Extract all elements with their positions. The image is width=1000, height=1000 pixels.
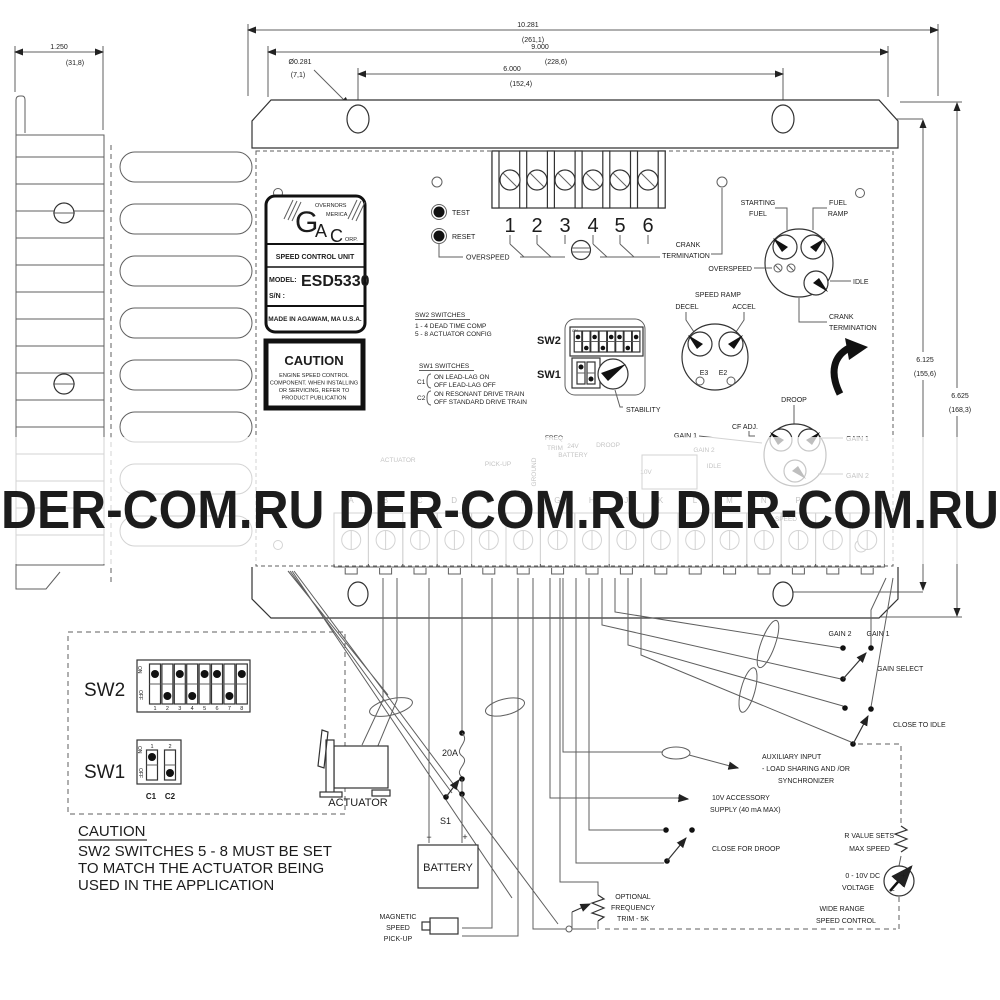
nameplate-label: G OVERNORS A MERICA C ORP. SPEED CONTROL…: [266, 196, 370, 332]
svg-text:5: 5: [203, 706, 206, 712]
caution-label-line1: ENGINE SPEED CONTROL: [279, 373, 349, 379]
mounting-hole: [772, 105, 794, 133]
svg-text:4: 4: [191, 706, 194, 712]
dim-overall-width-in: 10.281: [517, 22, 539, 29]
detail-sw1-off: OFF: [137, 768, 143, 778]
max-speed-resistor: [895, 826, 907, 852]
fuel-knob-cluster: STARTING FUEL FUEL RAMP OVERSPEED IDLE C…: [708, 200, 876, 332]
overspeed-label: OVERSPEED: [466, 255, 510, 262]
twisted-pair-icon: [368, 694, 415, 720]
caution-label-line3: OR SERVICING, REFER TO: [279, 388, 350, 394]
trim-line1: OPTIONAL: [615, 894, 651, 901]
svg-text:7: 7: [228, 706, 231, 712]
detail-sw2-on: ON: [136, 666, 142, 674]
logo-governors: OVERNORS: [315, 203, 347, 209]
decel-label: DECEL: [675, 304, 698, 311]
serial-label: S/N :: [269, 293, 285, 300]
reset-button: [434, 231, 445, 242]
dimension-lines-top: 10.281 (261,1) 9.000 (228,6) 6.000 (152,…: [248, 22, 938, 105]
dim-height-holes-mm: (155,6): [914, 371, 936, 378]
logo-corp: ORP.: [345, 237, 358, 243]
board-hole: [717, 177, 727, 187]
logo-letter-a: A: [315, 221, 327, 241]
sw1-c2: C2: [417, 395, 426, 402]
twisted-pair-icon: [484, 694, 527, 719]
sw2-note-1: 1 - 4 DEAD TIME COMP: [415, 323, 486, 330]
close-to-idle-switch: [853, 716, 868, 744]
sw2-note-2: 5 - 8 ACTUATOR CONFIG: [415, 331, 492, 338]
detail-sw2-off: OFF: [137, 690, 143, 700]
droop-title: DROOP: [781, 397, 807, 404]
actuator-symbol: [318, 730, 390, 797]
pickup-line1: MAGNETIC: [380, 914, 417, 921]
logo-america: MERICA: [326, 212, 348, 218]
test-reset-controls: TEST RESET OVERSPEED: [432, 205, 510, 262]
caution-note-line2: TO MATCH THE ACTUATOR BEING: [78, 860, 324, 877]
model-label: MODEL:: [269, 277, 297, 284]
dimension-wiring-diagram: 10.281 (261,1) 9.000 (228,6) 6.000 (152,…: [0, 0, 1000, 1000]
sw1-c1-off: OFF LEAD-LAG OFF: [434, 382, 496, 389]
starting-fuel-line1: STARTING: [741, 200, 776, 207]
terminal-4: 4: [587, 215, 598, 237]
fuel-ramp-line1: FUEL: [829, 200, 847, 207]
detail-c2-label: C2: [165, 792, 176, 801]
dim-depth-mm: (31,8): [66, 60, 84, 67]
volt-line2: VOLTAGE: [842, 885, 874, 892]
board-dip-switches: SW2 SW1 ON STABILITY: [537, 319, 661, 414]
knob-crank-line1: CRANK: [829, 314, 854, 321]
mounting-hole: [347, 105, 369, 133]
dip-switch-detail: SW2 ON OFF 12345678 SW1 ON OFF 1 2 C1 C2: [68, 632, 345, 814]
crank-termination-line1: CRANK: [676, 242, 701, 249]
meter-minus: −: [890, 886, 895, 895]
gain2-label: GAIN 2: [829, 631, 852, 638]
dim-height-overall-mm: (168,3): [949, 407, 971, 414]
svg-text:1: 1: [153, 706, 156, 712]
idle-label: IDLE: [853, 279, 869, 286]
knob-crank-line2: TERMINATION: [829, 325, 877, 332]
pickup-symbol: [430, 918, 458, 934]
dim-height-holes-in: 6.125: [916, 357, 934, 364]
mounting-hole: [348, 582, 368, 606]
caution-note: CAUTION SW2 SWITCHES 5 - 8 MUST BE SET T…: [78, 823, 332, 894]
dim-hole-spacing-mm: (152,4): [510, 81, 532, 88]
watermark-text: DER-COM.RU DER-COM.RU DER-COM.RU: [1, 480, 999, 540]
trim-line2: FREQUENCY: [611, 905, 655, 912]
diagram-canvas: 10.281 (261,1) 9.000 (228,6) 6.000 (152,…: [0, 0, 1000, 1000]
battery-minus: −: [426, 832, 431, 842]
wide-line2: SPEED CONTROL: [816, 918, 876, 925]
origin-label: MADE IN AGAWAM, MA U.S.A.: [268, 316, 362, 323]
trim-line3: TRIM - 5K: [617, 916, 649, 923]
terminal-block: 1 2 3 4 5 6 CRANK TERMINATION: [492, 151, 722, 260]
battery-plus: +: [462, 832, 467, 842]
sw1-c2-off: OFF STANDARD DRIVE TRAIN: [434, 399, 527, 406]
meter-plus: +: [901, 871, 906, 880]
sw1-c1: C1: [417, 379, 426, 386]
caution-label-title: CAUTION: [284, 353, 343, 368]
fuel-ramp-line2: RAMP: [828, 211, 849, 218]
caution-note-line1: SW2 SWITCHES 5 - 8 MUST BE SET: [78, 843, 332, 860]
switch-notes: SW2 SWITCHES 1 - 4 DEAD TIME COMP 5 - 8 …: [415, 312, 527, 406]
board-hole: [856, 189, 865, 198]
e2-label: E2: [719, 370, 728, 377]
caution-label-line4: PRODUCT PUBLICATION: [282, 396, 347, 402]
starting-fuel-line2: FUEL: [749, 211, 767, 218]
adjust-screw-icon: [572, 241, 591, 260]
svg-text:8: 8: [240, 706, 243, 712]
stability-label: STABILITY: [626, 407, 661, 414]
speed-ramp-title: SPEED RAMP: [695, 292, 741, 299]
cf-adj-label: CF ADJ.: [732, 424, 758, 431]
caution-label-line2: COMPONENT. WHEN INSTALLING: [270, 381, 358, 387]
gain-select-switch: [843, 653, 866, 679]
wide-line1: WIDE RANGE: [819, 906, 864, 913]
reset-label: RESET: [452, 234, 476, 241]
dim-overall-width-mm: (261,1): [522, 37, 544, 44]
terminal-6: 6: [642, 215, 653, 237]
caution-note-title: CAUTION: [78, 823, 146, 840]
battery-label: BATTERY: [423, 862, 473, 874]
actuator-label: ACTUATOR: [328, 797, 388, 809]
svg-text:6: 6: [215, 706, 218, 712]
svg-text:2: 2: [166, 706, 169, 712]
dim-flange-width-mm: (228,6): [545, 59, 567, 66]
crank-termination-line2: TERMINATION: [662, 253, 710, 260]
volt-line1: 0 - 10V DC: [845, 873, 880, 880]
board-sw1-label: SW1: [537, 369, 561, 381]
twisted-pair-icon: [735, 666, 760, 714]
sw1-c1-on: ON LEAD-LAG ON: [434, 374, 490, 381]
dim-depth-in: 1.250: [50, 44, 68, 51]
test-label: TEST: [452, 210, 471, 217]
sw1-switches-title: SW1 SWITCHES: [419, 363, 470, 370]
dim-flange-width-in: 9.000: [531, 44, 549, 51]
board-hole: [432, 177, 442, 187]
detail-c1-label: C1: [146, 792, 157, 801]
svg-text:3: 3: [178, 706, 181, 712]
aux-line1: AUXILIARY INPUT: [762, 754, 822, 761]
external-wiring: ACTUATOR 20A S1 − + BATTERY MAGNETIC SPE…: [288, 571, 946, 943]
board-sw2-label: SW2: [537, 335, 561, 347]
detail-sw1-on: ON: [136, 746, 142, 754]
terminal-5: 5: [614, 215, 625, 237]
pickup-line3: PICK-UP: [384, 936, 413, 943]
dimension-depth: 1.250 (31,8): [15, 44, 103, 130]
dim-height-overall-in: 6.625: [951, 393, 969, 400]
rvalue-line1: R VALUE SETS: [844, 833, 894, 840]
aux-line3: SYNCHRONIZER: [778, 778, 834, 785]
pickup-line2: SPEED: [386, 925, 410, 932]
terminal-1: 1: [504, 215, 515, 237]
nameplate-unit-title: SPEED CONTROL UNIT: [276, 254, 355, 261]
close-to-idle-label: CLOSE TO IDLE: [893, 722, 946, 729]
sw2-switches-title: SW2 SWITCHES: [415, 312, 466, 319]
e3-label: E3: [700, 370, 709, 377]
twisted-pair-icon: [662, 747, 690, 759]
dim-hole-dia-mm: (7,1): [291, 72, 305, 79]
detail-sw1-num2: 2: [168, 744, 171, 750]
terminal-3: 3: [559, 215, 570, 237]
detail-sw1-label: SW1: [84, 762, 125, 783]
gain1-label: GAIN 1: [867, 631, 890, 638]
rvalue-line2: MAX SPEED: [849, 846, 890, 853]
dim-hole-spacing-in: 6.000: [503, 66, 521, 73]
caution-label: CAUTION ENGINE SPEED CONTROL COMPONENT. …: [266, 341, 363, 408]
close-for-droop-label: CLOSE FOR DROOP: [712, 846, 780, 853]
knob-overspeed-label: OVERSPEED: [708, 266, 752, 273]
accel-label: ACCEL: [732, 304, 755, 311]
sw1-c2-on: ON RESONANT DRIVE TRAIN: [434, 391, 525, 398]
terminal-2: 2: [531, 215, 542, 237]
fuse-label: 20A: [442, 748, 458, 758]
close-for-droop-switch: [667, 838, 686, 861]
supply-line1: 10V ACCESSORY: [712, 795, 770, 802]
speed-ramp-cluster: SPEED RAMP DECEL ACCEL E3 E2: [675, 292, 755, 390]
model-number: ESD5330: [301, 273, 370, 290]
supply-line2: SUPPLY (40 mA MAX): [710, 807, 781, 814]
gain-select-label: GAIN SELECT: [877, 666, 924, 673]
rotation-arrow-icon: [834, 338, 868, 394]
detail-sw1-num1: 1: [150, 744, 153, 750]
dim-hole-dia-in: Ø0.281: [289, 59, 312, 66]
s1-label: S1: [440, 816, 451, 826]
detail-sw2-label: SW2: [84, 680, 125, 701]
trim-pot-symbol: [592, 895, 604, 921]
caution-note-line3: USED IN THE APPLICATION: [78, 877, 274, 894]
test-button: [434, 207, 445, 218]
aux-line2: - LOAD SHARING AND /OR: [762, 766, 850, 773]
mounting-hole: [773, 582, 793, 606]
